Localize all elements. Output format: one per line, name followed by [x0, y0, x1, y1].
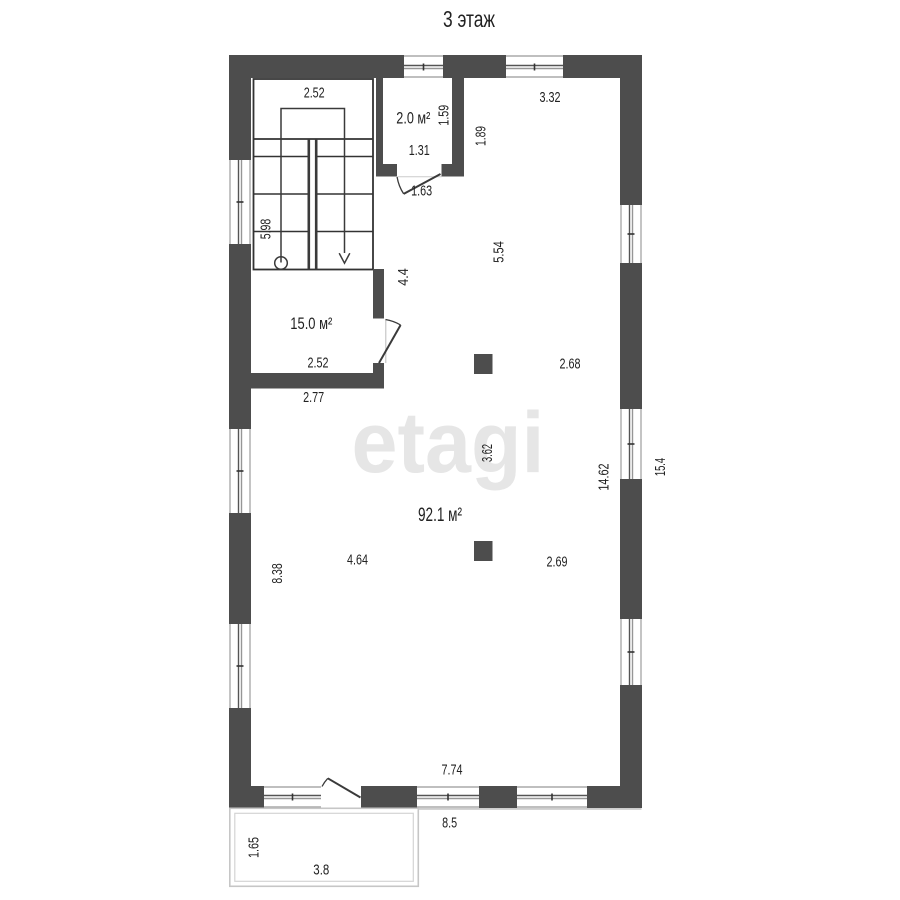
svg-text:15.4: 15.4 [653, 458, 669, 476]
svg-text:15.0 м²: 15.0 м² [290, 314, 332, 333]
svg-text:1.63: 1.63 [411, 184, 432, 200]
svg-text:14.62: 14.62 [597, 463, 613, 490]
svg-text:7.74: 7.74 [442, 763, 463, 779]
svg-text:8.38: 8.38 [270, 563, 286, 583]
svg-text:3.8: 3.8 [313, 863, 329, 879]
svg-text:3.62: 3.62 [480, 444, 496, 462]
svg-text:3 этаж: 3 этаж [443, 6, 495, 32]
svg-text:1.65: 1.65 [247, 837, 263, 858]
svg-text:5.98: 5.98 [259, 219, 275, 240]
svg-text:2.77: 2.77 [303, 390, 324, 406]
svg-text:2.52: 2.52 [304, 86, 325, 102]
svg-text:etagi: etagi [352, 395, 545, 491]
svg-text:2.0 м²: 2.0 м² [396, 109, 430, 128]
svg-text:1.59: 1.59 [437, 105, 453, 126]
svg-text:2.68: 2.68 [560, 357, 581, 373]
svg-text:4.64: 4.64 [347, 553, 368, 569]
svg-text:2.69: 2.69 [547, 555, 568, 571]
svg-text:8.5: 8.5 [442, 816, 457, 832]
svg-text:2.52: 2.52 [308, 356, 329, 372]
svg-text:4.4: 4.4 [396, 268, 412, 285]
svg-text:92.1 м²: 92.1 м² [418, 505, 462, 526]
svg-text:5.54: 5.54 [491, 241, 507, 263]
svg-text:1.89: 1.89 [473, 126, 489, 146]
svg-text:3.32: 3.32 [540, 90, 561, 106]
svg-text:1.31: 1.31 [409, 143, 430, 159]
